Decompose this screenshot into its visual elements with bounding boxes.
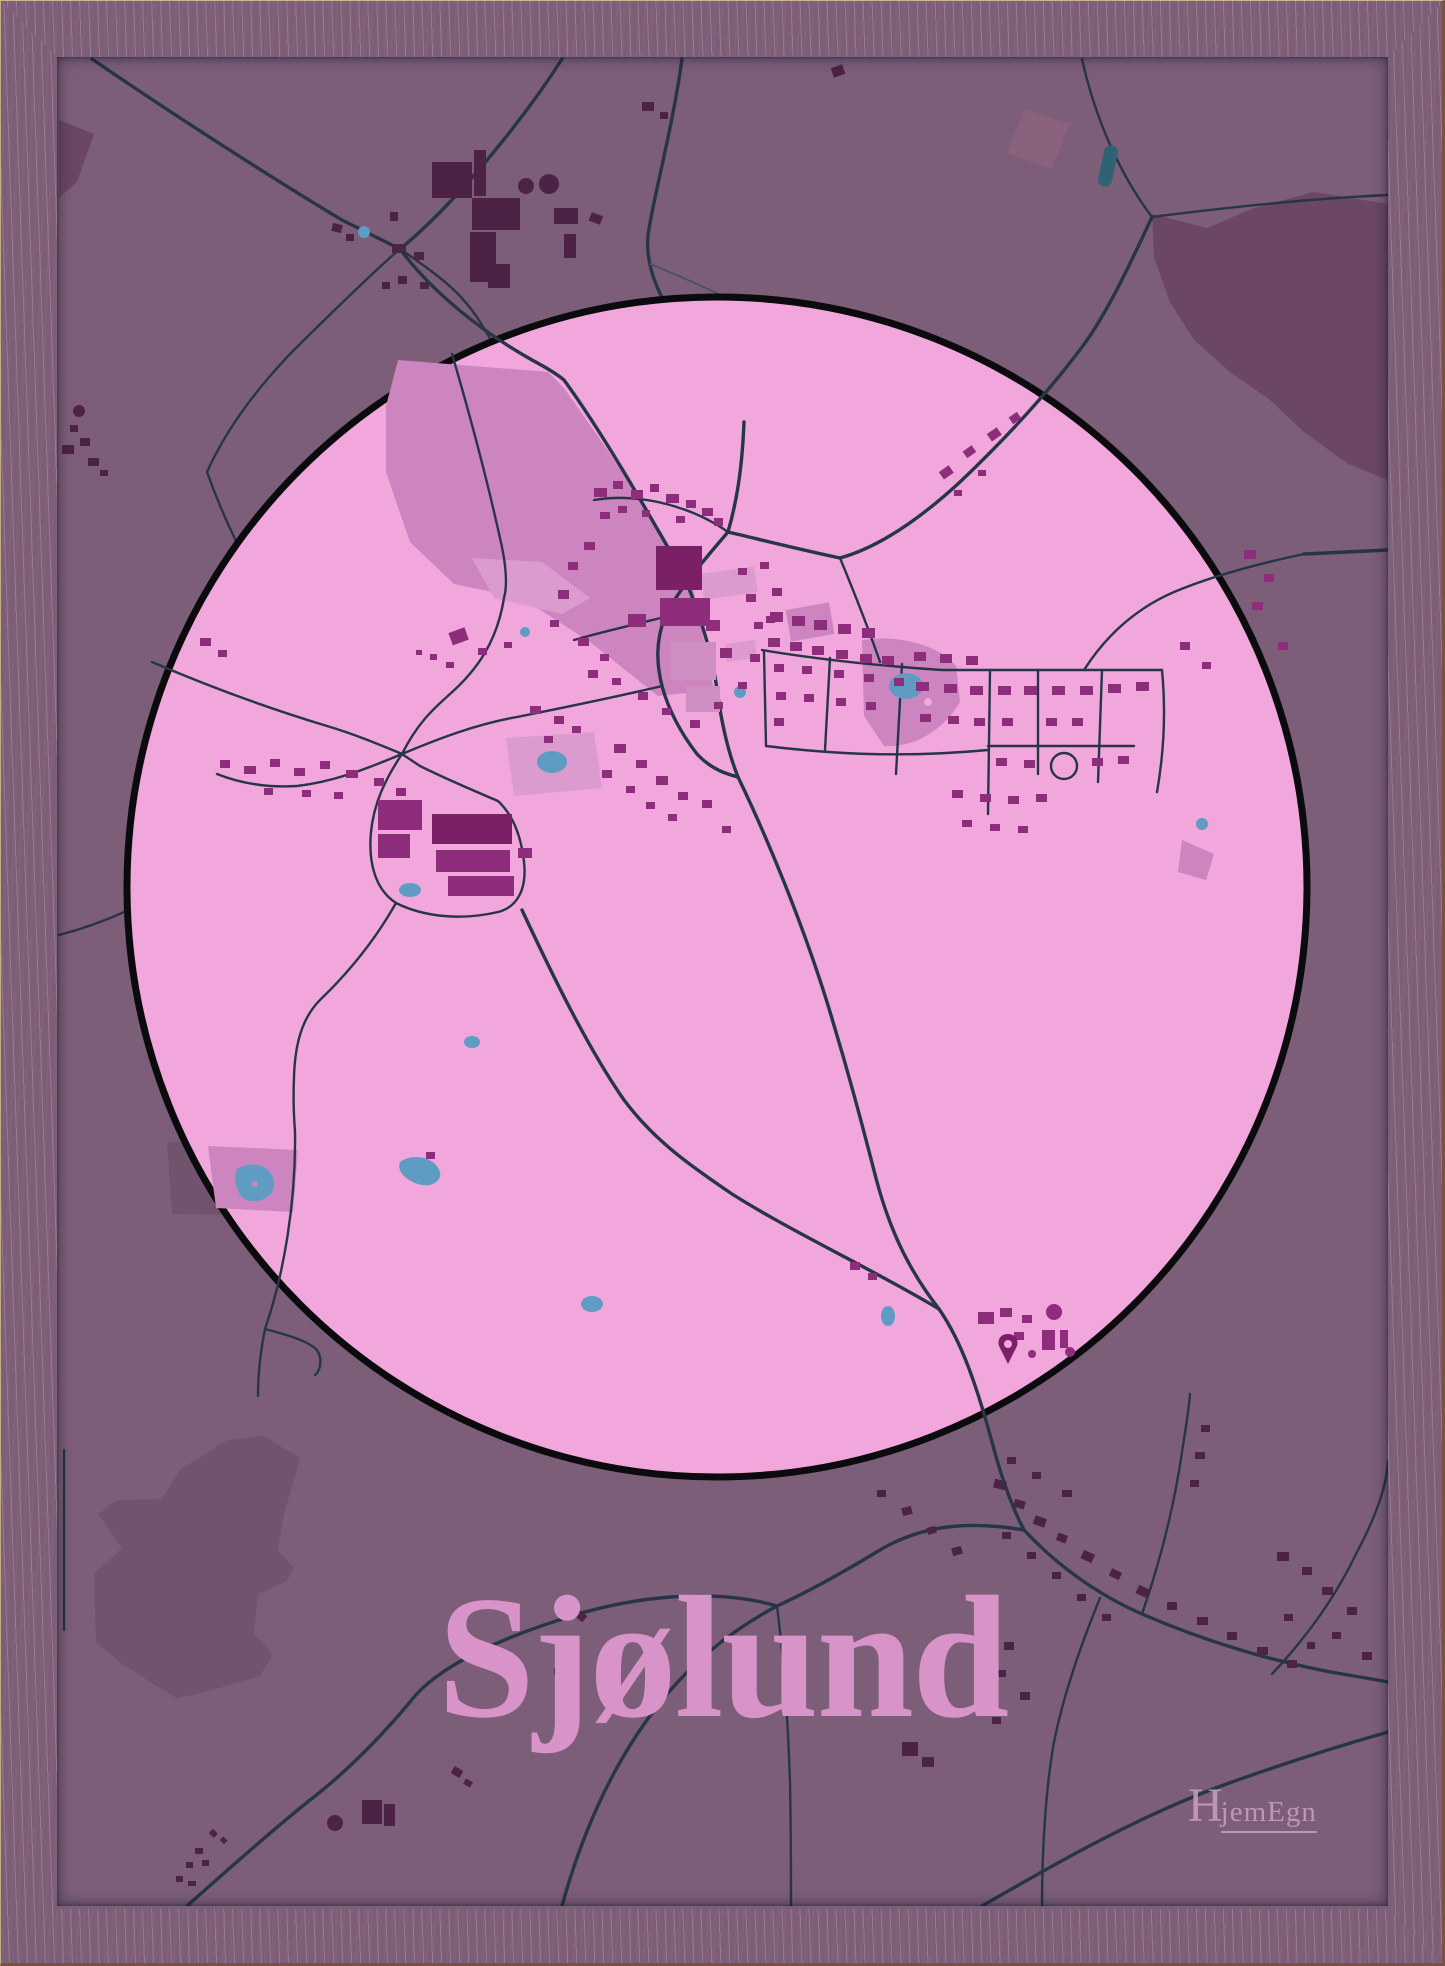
brand-logo-rest: jemEgn <box>1221 1796 1317 1833</box>
framed-map-poster: Sjølund HjemEgn <box>0 0 1445 1966</box>
focus-circle <box>127 297 1307 1477</box>
poster-title: Sjølund <box>0 1570 1445 1745</box>
frame-top <box>0 0 1445 57</box>
brand-logo-initial: H <box>1188 1779 1223 1832</box>
frame-bottom <box>0 1909 1445 1966</box>
brand-logo: HjemEgn <box>1188 1782 1317 1830</box>
